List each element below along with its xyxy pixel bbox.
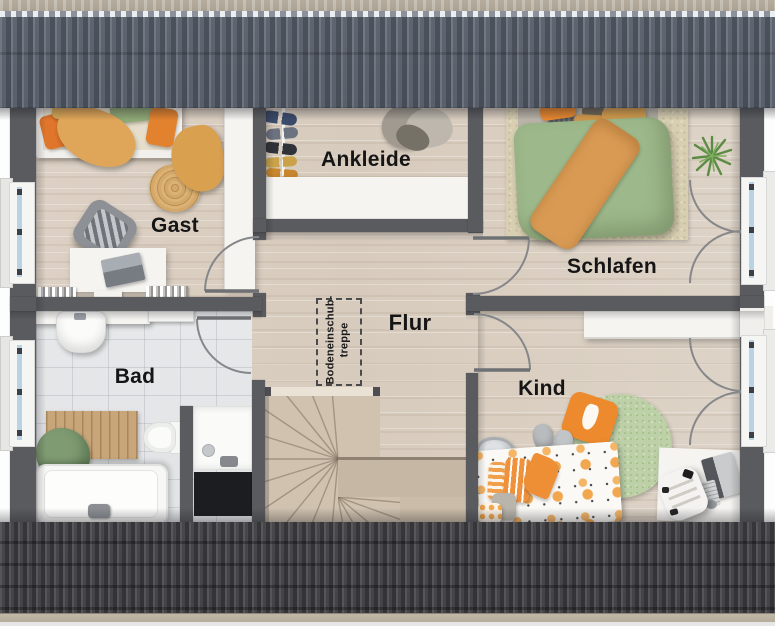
staircase xyxy=(250,385,480,522)
faucet xyxy=(74,313,86,320)
toilet-bowl xyxy=(143,422,176,453)
window-hardware xyxy=(17,269,22,275)
guest-wardrobe xyxy=(224,108,255,290)
room-label-gast: Gast xyxy=(151,214,199,238)
window-hardware xyxy=(17,189,22,195)
room-label-bad: Bad xyxy=(115,365,156,389)
roof-bottom xyxy=(0,522,775,613)
plant-icon xyxy=(690,134,734,178)
attic-hatch-label-line2: treppe xyxy=(339,323,351,358)
room-label-schlafen: Schlafen xyxy=(567,255,657,279)
window-kind xyxy=(741,335,767,447)
window-hardware xyxy=(749,432,754,438)
wall-shower-partition xyxy=(180,406,193,522)
window-hardware xyxy=(749,387,754,393)
room-label-flur: Flur xyxy=(389,310,432,336)
wall-shelf-cover xyxy=(740,308,764,337)
outer-wall-left xyxy=(10,108,36,522)
wall-schlafen-kind xyxy=(466,296,764,311)
plant xyxy=(690,134,734,178)
attic-hatch-label-line1: Bodeneinschub- xyxy=(325,296,337,385)
wall-shelf xyxy=(584,308,740,339)
window-schlafen xyxy=(741,177,767,285)
window-hardware xyxy=(17,229,22,235)
roof-eave-edge xyxy=(0,622,775,626)
wall-bad-stairs xyxy=(252,380,265,522)
window-hardware xyxy=(17,389,22,395)
ankleide-dresser xyxy=(264,177,470,219)
window-hardware xyxy=(17,348,22,354)
wall-gast-bad xyxy=(10,297,262,311)
shower-fixture xyxy=(220,456,238,467)
room-label-ankleide: Ankleide xyxy=(321,148,411,172)
window-gast xyxy=(9,182,35,284)
window-bad xyxy=(9,340,35,447)
dark-niche xyxy=(194,472,256,516)
pillow xyxy=(478,503,502,523)
floor-plan: Bodeneinschub- treppe Gast Ankleide Schl… xyxy=(0,0,775,626)
window-hardware xyxy=(749,342,754,348)
staircase-drawing xyxy=(250,385,480,522)
small-item xyxy=(662,487,669,493)
wall-ankleide-schlafen xyxy=(468,108,483,233)
window-hardware xyxy=(749,184,754,190)
room-label-kind: Kind xyxy=(518,377,566,401)
window-hardware xyxy=(749,227,754,233)
attic-hatch-label: Bodeneinschub- treppe xyxy=(324,280,353,400)
roof-tile-edge xyxy=(0,11,775,17)
window-hardware xyxy=(17,430,22,436)
wall-flur-kind xyxy=(466,373,478,522)
bath-faucet xyxy=(88,504,110,518)
wall-ankleide-flur xyxy=(253,219,483,232)
shower-drain xyxy=(202,444,215,457)
window-hardware xyxy=(749,270,754,276)
